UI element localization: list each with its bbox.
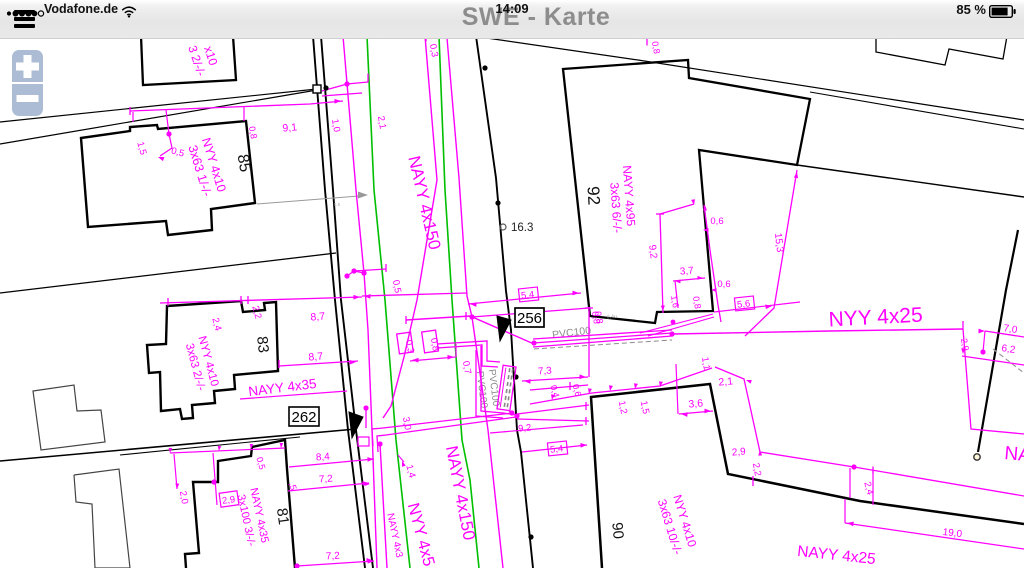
svg-text:92: 92	[584, 186, 604, 206]
svg-text:2,9: 2,9	[731, 446, 746, 458]
svg-text:81: 81	[273, 507, 292, 526]
svg-text:0,8: 0,8	[691, 295, 703, 309]
svg-text:85: 85	[234, 153, 254, 174]
svg-text:0,5: 0,5	[390, 279, 403, 294]
svg-text:0,3: 0,3	[403, 339, 416, 354]
svg-text:5.5: 5.5	[334, 202, 341, 207]
svg-text:1,6: 1,6	[669, 294, 681, 308]
svg-text:9,2: 9,2	[646, 244, 659, 260]
svg-text:8,7: 8,7	[310, 310, 326, 323]
svg-text:0,8: 0,8	[650, 40, 662, 54]
svg-text:2,9: 2,9	[221, 494, 236, 507]
svg-text:2,0: 2,0	[177, 490, 190, 505]
svg-text:8,7: 8,7	[308, 350, 324, 363]
svg-text:NA: NA	[1004, 443, 1024, 466]
svg-text:90: 90	[608, 522, 626, 540]
svg-text:5,6: 5,6	[737, 298, 751, 310]
svg-text:2,9: 2,9	[959, 337, 971, 351]
svg-text:1,0: 1,0	[329, 118, 342, 133]
svg-text:3,6: 3,6	[688, 397, 704, 410]
svg-text:8,4: 8,4	[316, 452, 331, 464]
svg-text:9,1: 9,1	[282, 121, 298, 134]
svg-text:2,2: 2,2	[750, 462, 763, 477]
svg-text:16.3: 16.3	[511, 222, 533, 234]
svg-text:262: 262	[291, 409, 316, 426]
svg-text:0,3: 0,3	[427, 43, 440, 58]
svg-text:2,1: 2,1	[375, 115, 388, 130]
svg-text:0,8: 0,8	[247, 125, 259, 139]
svg-text:NYY 4x25: NYY 4x25	[828, 304, 923, 332]
svg-text:3,7: 3,7	[679, 265, 694, 277]
svg-text:2,4u: 2,4u	[607, 314, 617, 321]
svg-text:7,3: 7,3	[538, 366, 553, 378]
svg-text:9,2: 9,2	[518, 422, 532, 434]
svg-text:7,0: 7,0	[1003, 323, 1019, 336]
svg-text:0,6: 0,6	[710, 216, 723, 227]
svg-text:256: 256	[517, 310, 542, 327]
svg-text:0,6: 0,6	[717, 279, 730, 290]
svg-text:0,7: 0,7	[460, 360, 473, 375]
svg-text:5,4: 5,4	[550, 443, 564, 455]
svg-text:3,0: 3,0	[400, 416, 413, 431]
svg-text:6,2: 6,2	[1001, 343, 1017, 356]
svg-text:7,2: 7,2	[319, 474, 334, 486]
svg-text:0,8: 0,8	[428, 337, 441, 352]
svg-text:7,2: 7,2	[326, 551, 341, 563]
svg-text:0,8: 0,8	[590, 310, 602, 324]
svg-text:5,4: 5,4	[521, 289, 535, 301]
svg-text:83: 83	[253, 335, 272, 353]
svg-text:2,1: 2,1	[718, 375, 734, 388]
svg-text:1,1: 1,1	[699, 356, 712, 371]
